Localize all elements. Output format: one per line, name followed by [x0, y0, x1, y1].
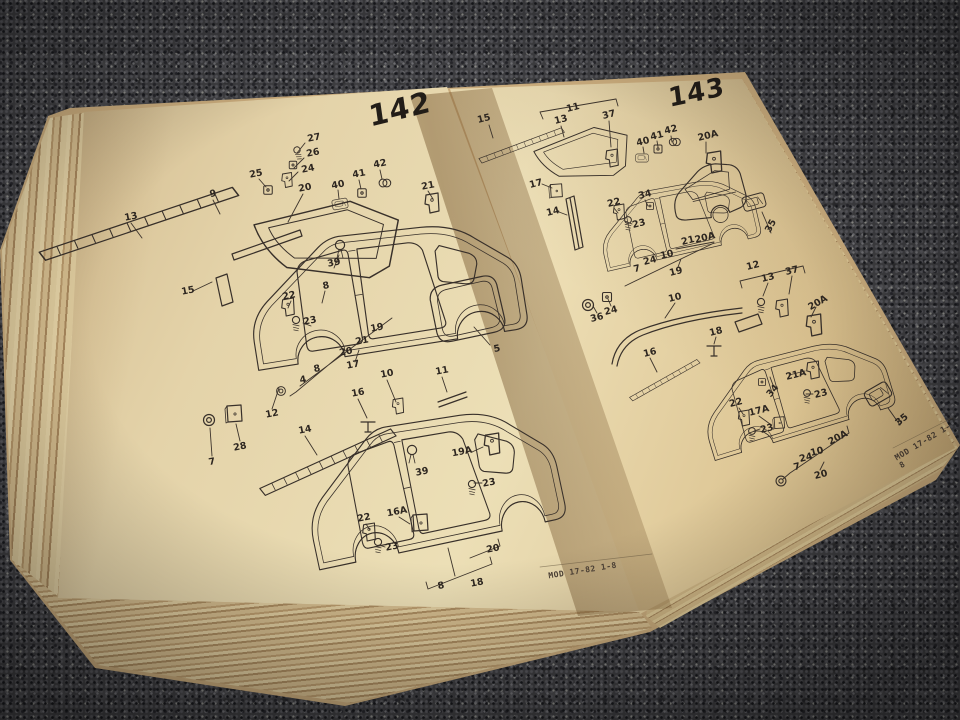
photo-of-open-parts-catalog: 2726242520404142219131539822231921201784… — [0, 0, 960, 720]
photo-vignette — [0, 0, 960, 720]
